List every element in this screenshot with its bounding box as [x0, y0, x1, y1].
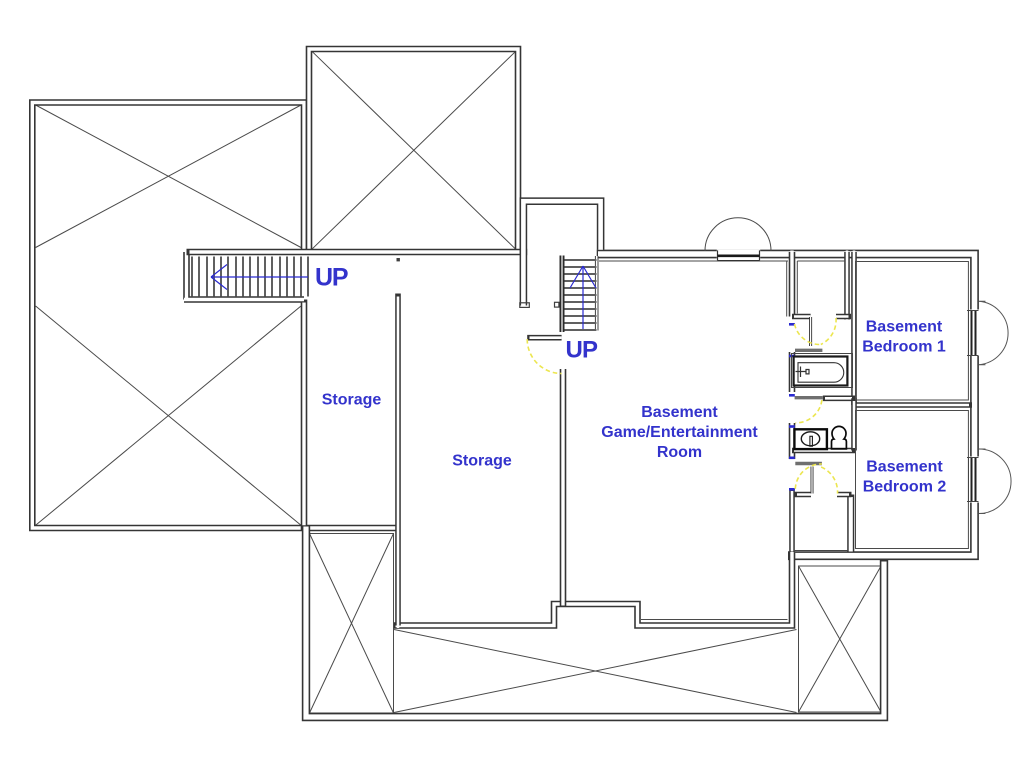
svg-text:Basement: Basement: [641, 404, 718, 421]
svg-text:Storage: Storage: [322, 392, 382, 409]
svg-text:Bedroom 1: Bedroom 1: [862, 339, 946, 356]
svg-text:Basement: Basement: [866, 319, 943, 336]
svg-text:UP: UP: [566, 337, 599, 364]
svg-text:Game/Entertainment: Game/Entertainment: [601, 424, 758, 441]
svg-text:Basement: Basement: [866, 459, 943, 476]
svg-text:Room: Room: [657, 444, 702, 461]
svg-text:UP: UP: [315, 264, 348, 292]
svg-text:Storage: Storage: [452, 453, 512, 470]
svg-text:Bedroom 2: Bedroom 2: [863, 479, 947, 496]
